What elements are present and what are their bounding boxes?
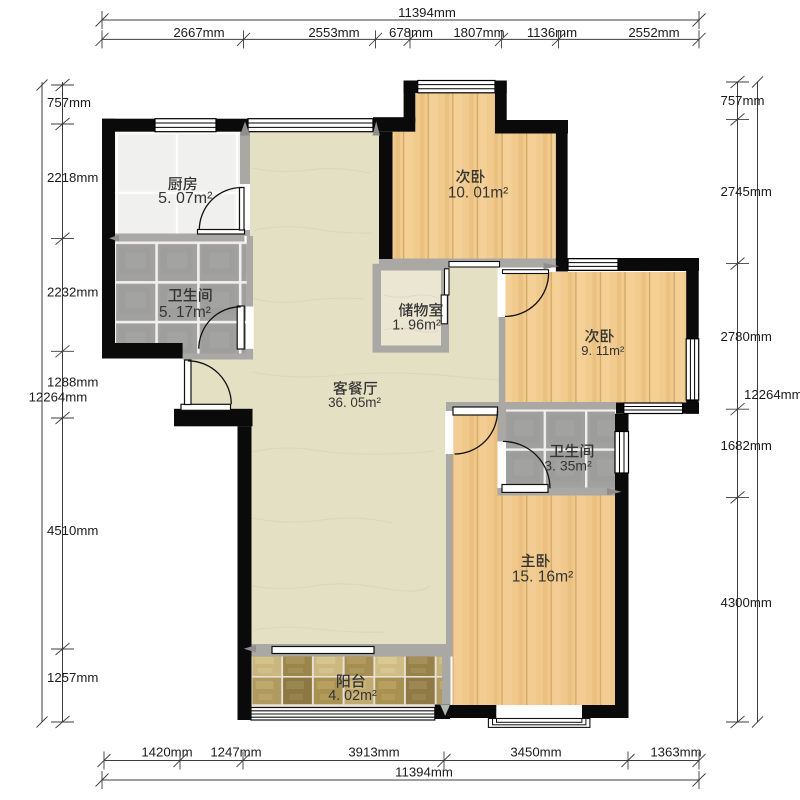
svg-text:4300mm: 4300mm [721,595,772,610]
svg-text:36. 05m²: 36. 05m² [328,395,381,410]
svg-text:11394mm: 11394mm [398,5,456,20]
svg-text:757mm: 757mm [721,93,765,108]
svg-text:2780mm: 2780mm [721,329,772,344]
svg-text:15. 16m²: 15. 16m² [512,568,574,585]
svg-text:1682mm: 1682mm [721,438,772,453]
svg-text:1363mm: 1363mm [650,745,701,760]
svg-text:2553mm: 2553mm [308,25,359,40]
svg-text:1807mm: 1807mm [453,25,504,40]
svg-text:9. 11m²: 9. 11m² [581,343,625,358]
svg-text:3913mm: 3913mm [348,745,399,760]
svg-text:2218mm: 2218mm [47,170,98,185]
svg-text:678mm: 678mm [389,25,433,40]
svg-text:4510mm: 4510mm [47,523,98,538]
svg-text:1288mm: 1288mm [47,374,98,389]
svg-text:757mm: 757mm [47,95,91,110]
svg-text:2667mm: 2667mm [173,25,224,40]
svg-text:1. 96m²: 1. 96m² [392,317,441,333]
svg-text:2552mm: 2552mm [628,25,679,40]
svg-text:10. 01m²: 10. 01m² [448,185,508,202]
svg-text:2745mm: 2745mm [721,184,772,199]
svg-text:4. 02m²: 4. 02m² [328,688,377,704]
svg-text:3450mm: 3450mm [510,745,561,760]
svg-text:1420mm: 1420mm [141,745,192,760]
svg-text:12264mm: 12264mm [29,390,88,405]
svg-text:2232mm: 2232mm [47,285,98,300]
svg-text:12264mm: 12264mm [744,387,800,402]
svg-text:1136mm: 1136mm [527,25,577,40]
svg-text:5. 17m²: 5. 17m² [159,304,211,321]
svg-text:3. 35m²: 3. 35m² [544,458,592,474]
svg-text:5. 07m²: 5. 07m² [158,190,213,207]
svg-text:11394mm: 11394mm [395,765,453,780]
svg-text:1257mm: 1257mm [47,670,98,685]
svg-text:1247mm: 1247mm [210,745,261,760]
